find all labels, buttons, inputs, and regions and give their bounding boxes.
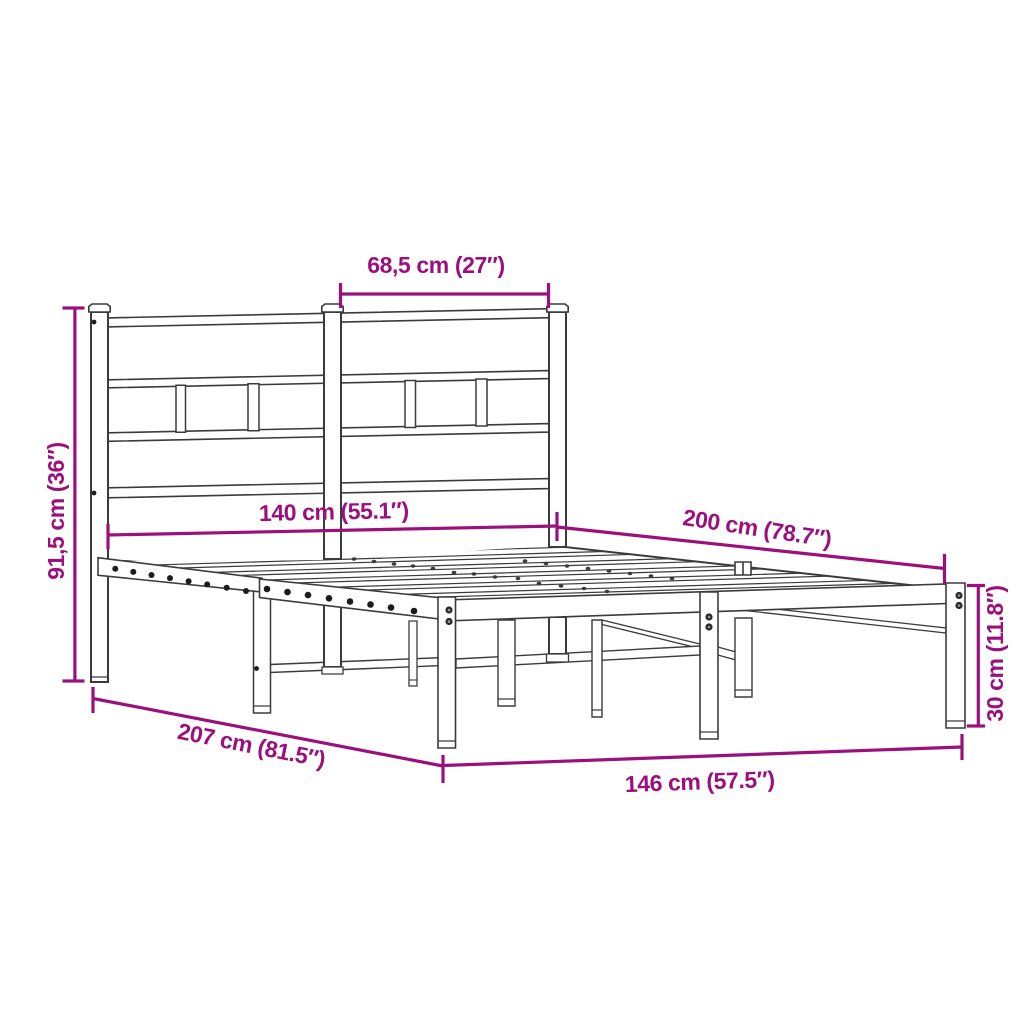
svg-text:146 cm (57.5″): 146 cm (57.5″) xyxy=(624,766,775,797)
svg-text:68,5 cm (27″): 68,5 cm (27″) xyxy=(367,252,505,278)
svg-text:30 cm (11.8″): 30 cm (11.8″) xyxy=(982,585,1008,721)
svg-text:91,5 cm (36″): 91,5 cm (36″) xyxy=(43,442,69,580)
svg-text:140 cm (55.1″): 140 cm (55.1″) xyxy=(259,497,409,526)
